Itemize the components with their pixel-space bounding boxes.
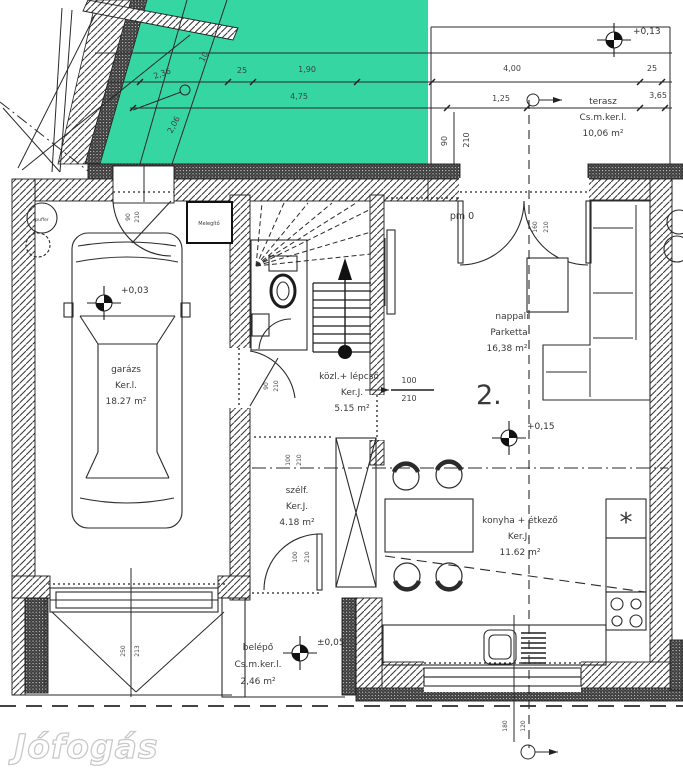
living-finish: Parketta bbox=[490, 328, 527, 338]
dim-drive-250: 250 bbox=[120, 645, 127, 657]
door-garage-top bbox=[113, 201, 171, 256]
buffer-label: puffer bbox=[35, 217, 49, 223]
closet-icon bbox=[336, 438, 376, 587]
szelf-finish: Ker.J. bbox=[286, 502, 308, 512]
terasz-name: terasz bbox=[589, 97, 617, 107]
garage-finish: Ker.l. bbox=[115, 381, 137, 391]
drainer-icon bbox=[521, 633, 546, 663]
dining-table bbox=[385, 499, 473, 552]
kitchen-name: konyha + étkező bbox=[482, 515, 558, 526]
szelf-name: szélf. bbox=[286, 485, 309, 496]
kitchen-area: 11.62 m² bbox=[499, 548, 540, 558]
living-name: nappali bbox=[495, 312, 528, 322]
dim-garage-door-w: 90 bbox=[125, 213, 132, 221]
radiator-icon bbox=[387, 230, 395, 314]
wc-under-stairs bbox=[251, 240, 307, 350]
coffee-table bbox=[527, 258, 568, 312]
dim-garage-door-h: 210 bbox=[134, 211, 141, 223]
hall-finish: Ker.J. bbox=[341, 388, 363, 398]
dim-szelf-door-h: 210 bbox=[304, 551, 311, 563]
level-garage: +0,03 bbox=[121, 286, 149, 296]
chair-icon bbox=[436, 462, 462, 488]
fridge-symbol: * bbox=[620, 508, 633, 538]
dim-drive-213: 213 bbox=[134, 645, 141, 657]
wall-right bbox=[650, 179, 672, 693]
dim-210-terasz: 210 bbox=[462, 132, 471, 147]
toilet-icon bbox=[271, 275, 295, 307]
wc-sink-icon bbox=[252, 314, 269, 336]
dim-3-65: 3,65 bbox=[649, 91, 667, 100]
unit-number: 2. bbox=[476, 380, 502, 411]
chair-icon bbox=[436, 563, 462, 589]
floor-plan-canvas: 2,36 10 25 1,90 4,00 25 4,75 1,25 3,65 2… bbox=[0, 0, 683, 768]
dim-terasz-door-h: 210 bbox=[543, 221, 550, 233]
dim-living-door-w: 100 bbox=[401, 376, 416, 385]
dim-hall-door-h: 210 bbox=[273, 380, 280, 392]
dim-szelf-top-h: 210 bbox=[296, 454, 303, 466]
garage-area: 18.27 m² bbox=[105, 397, 146, 407]
water-heater-label: Melegítő bbox=[198, 220, 219, 227]
living-area: 16,38 m² bbox=[486, 344, 527, 354]
level-marker-terasz bbox=[597, 23, 631, 57]
dim-szelf-top-w: 100 bbox=[285, 454, 292, 466]
watermark: Jófogás bbox=[8, 727, 159, 766]
szelf-area: 4.18 m² bbox=[279, 518, 315, 528]
level-marker-belepo bbox=[283, 636, 317, 670]
wall-garage-front-right bbox=[218, 576, 250, 598]
dim-1-90: 1,90 bbox=[298, 65, 316, 74]
straight-treads bbox=[313, 283, 371, 352]
dim-4-75: 4,75 bbox=[290, 92, 308, 101]
dim-25-a: 25 bbox=[237, 66, 247, 75]
dim-living-door-h: 210 bbox=[401, 394, 416, 403]
terasz-area: 10,06 m² bbox=[582, 129, 623, 139]
level-marker-living bbox=[492, 421, 526, 455]
floor-plan: 2,36 10 25 1,90 4,00 25 4,75 1,25 3,65 2… bbox=[0, 0, 683, 768]
entry-porch: belépő Cs.m.ker.l. 2,46 m² ±0,05 bbox=[222, 598, 345, 697]
hall-area: 5.15 m² bbox=[334, 404, 370, 414]
hall-name: közl.+ lépcső bbox=[319, 371, 379, 382]
dim-25-b: 25 bbox=[647, 64, 657, 73]
kitchen-finish: Ker.J. bbox=[508, 532, 530, 542]
belepo-area: 2,46 m² bbox=[240, 677, 276, 687]
garage-name: garázs bbox=[111, 365, 141, 375]
level-belepo: ±0,05 bbox=[317, 638, 345, 648]
living-room: pm 0 nappali Parketta 16,38 m² 2. +0,15 … bbox=[365, 198, 683, 455]
wall-garage-front-left bbox=[12, 576, 50, 598]
chair-icon bbox=[394, 563, 420, 589]
belepo-name: belépő bbox=[243, 642, 274, 653]
dim-window-180: 180 bbox=[502, 720, 509, 732]
wall-stairs-nappali bbox=[370, 195, 384, 395]
wall-belepo-kitchen bbox=[356, 598, 382, 695]
dim-hall-door-w: 90 bbox=[263, 382, 270, 390]
exterior-wall-topright-speckle bbox=[588, 164, 683, 179]
level-terasz: +0,13 bbox=[633, 27, 661, 37]
dim-terasz-door-w: 160 bbox=[532, 221, 539, 233]
dim-90-terasz: 90 bbox=[440, 136, 449, 146]
belepo-finish: Cs.m.ker.l. bbox=[235, 660, 282, 670]
dim-szelf-door-w: 100 bbox=[292, 551, 299, 563]
windcatcher: szélf. Ker.J. 4.18 m² 100 210 100 210 bbox=[279, 438, 376, 587]
stove-icon bbox=[606, 592, 646, 630]
staircase: közl.+ lépcső Ker.J. 5.15 m² 90 210 bbox=[251, 203, 379, 414]
level-living: +0,15 bbox=[527, 422, 555, 432]
axis-marker-bottom bbox=[521, 745, 535, 759]
dim-window-120: 120 bbox=[520, 720, 527, 732]
openings bbox=[48, 166, 589, 692]
walls bbox=[12, 164, 683, 701]
stair-direction-arrow bbox=[338, 258, 352, 280]
garage: puffer Melegítő +0,03 garázs Ker.l. 18.2… bbox=[26, 202, 232, 528]
pm-label: pm 0 bbox=[450, 211, 474, 222]
level-marker-garage bbox=[87, 286, 121, 320]
dim-1-25: 1,25 bbox=[492, 94, 510, 103]
wall-left bbox=[12, 179, 35, 598]
dim-4-00: 4,00 bbox=[503, 64, 521, 73]
terasz-finish: Cs.m.ker.l. bbox=[580, 113, 627, 123]
